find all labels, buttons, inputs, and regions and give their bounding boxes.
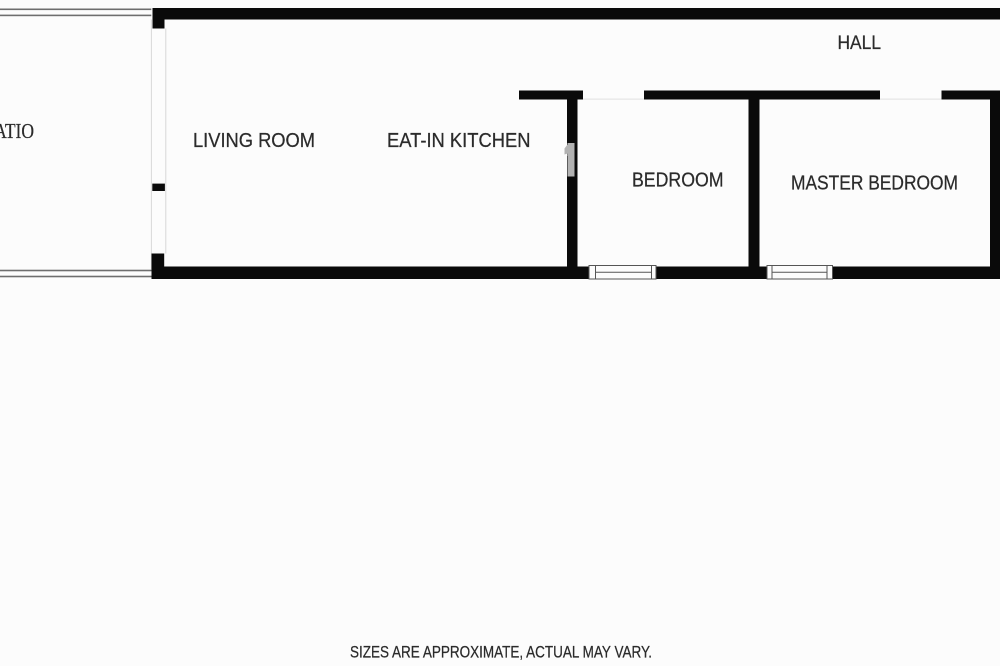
svg-text:LIVING ROOM: LIVING ROOM xyxy=(193,130,315,152)
svg-text:HALL: HALL xyxy=(838,33,882,54)
svg-text:SIZES ARE APPROXIMATE, ACTUAL: SIZES ARE APPROXIMATE, ACTUAL MAY VARY. xyxy=(350,644,652,662)
svg-text:BEDROOM: BEDROOM xyxy=(632,170,724,192)
svg-text:MASTER BEDROOM: MASTER BEDROOM xyxy=(791,173,958,195)
svg-text:PATIO: PATIO xyxy=(0,119,34,143)
svg-text:EAT-IN KITCHEN: EAT-IN KITCHEN xyxy=(387,130,531,152)
